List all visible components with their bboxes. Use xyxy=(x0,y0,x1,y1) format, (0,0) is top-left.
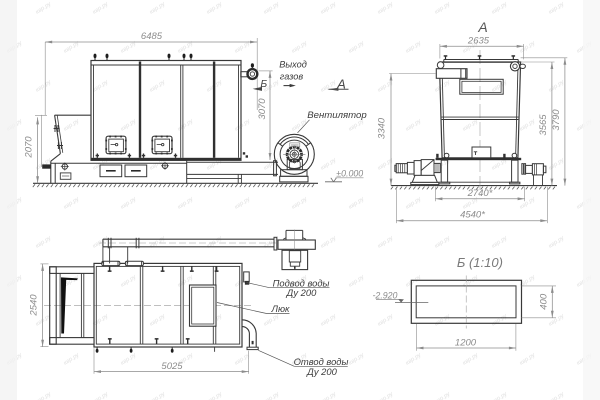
svg-text:2740*: 2740* xyxy=(467,188,493,199)
svg-text:3790: 3790 xyxy=(551,109,562,131)
svg-text:2070: 2070 xyxy=(23,136,34,159)
svg-text:Выход: Выход xyxy=(279,60,307,70)
svg-text:4540*: 4540* xyxy=(460,210,485,221)
svg-text:А: А xyxy=(477,19,487,35)
svg-text:2635: 2635 xyxy=(467,36,490,47)
svg-text:3565: 3565 xyxy=(538,114,549,136)
svg-text:400: 400 xyxy=(539,293,550,310)
svg-text:Ду 200: Ду 200 xyxy=(286,287,317,298)
svg-text:±0.000: ±0.000 xyxy=(336,168,363,178)
svg-text:Б (1:10): Б (1:10) xyxy=(457,255,503,270)
svg-text:1200: 1200 xyxy=(455,337,477,348)
svg-text:3070: 3070 xyxy=(257,98,268,120)
svg-text:Вентилятор: Вентилятор xyxy=(307,110,367,121)
svg-text:Ду 200: Ду 200 xyxy=(306,366,337,377)
svg-text:2540: 2540 xyxy=(29,294,40,317)
svg-text:3340: 3340 xyxy=(377,117,388,139)
svg-text:Люк: Люк xyxy=(271,303,290,314)
svg-text:6485: 6485 xyxy=(141,31,163,42)
svg-text:5025: 5025 xyxy=(161,361,183,372)
svg-text:газов: газов xyxy=(280,72,304,82)
